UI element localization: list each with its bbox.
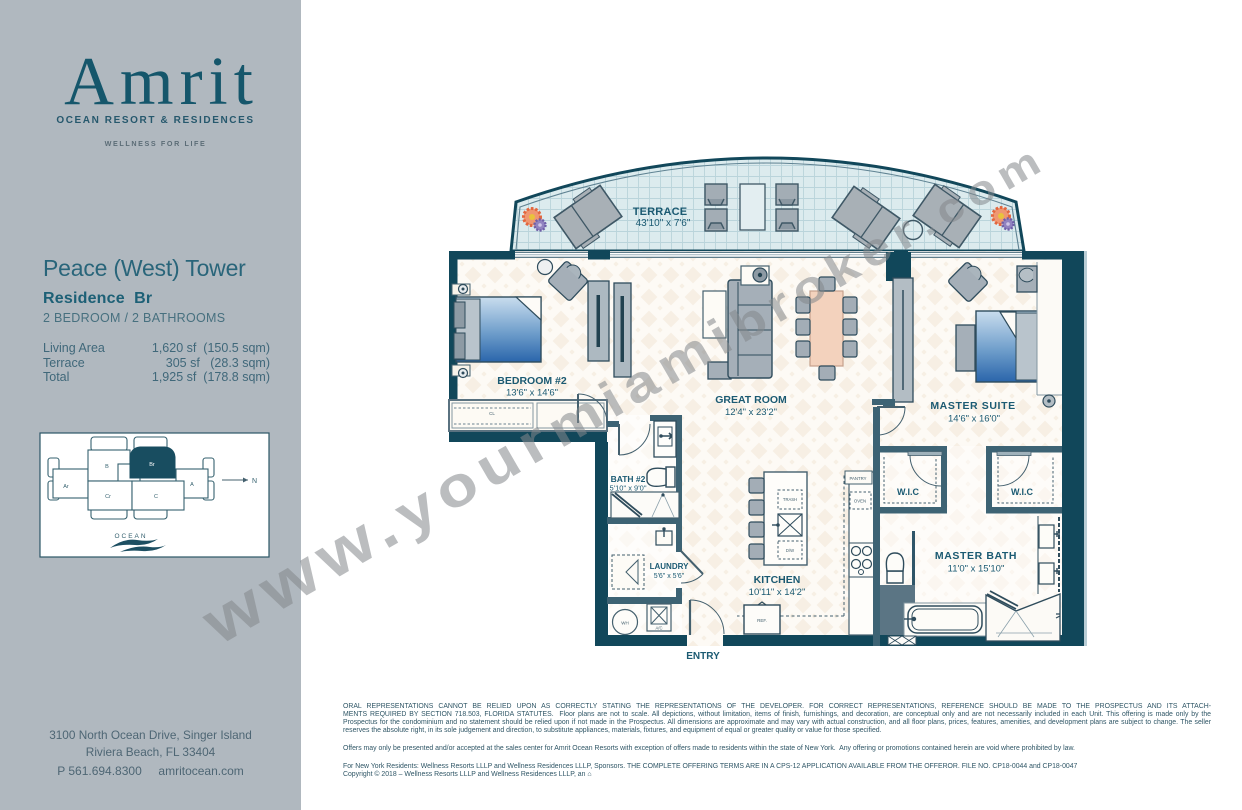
svg-text:A/C: A/C <box>656 626 663 631</box>
svg-text:C: C <box>154 494 158 500</box>
svg-text:TERRACE: TERRACE <box>633 206 688 218</box>
svg-text:12'4" x 23'2": 12'4" x 23'2" <box>725 407 777 418</box>
svg-text:Cr: Cr <box>105 494 111 500</box>
svg-text:WH: WH <box>621 621 629 626</box>
svg-text:ENTRY: ENTRY <box>686 651 720 662</box>
svg-text:11'0" x 15'10": 11'0" x 15'10" <box>948 564 1005 575</box>
svg-text:LAUNDRY: LAUNDRY <box>650 562 689 571</box>
svg-text:W.I.C: W.I.C <box>1011 487 1033 497</box>
svg-text:OVEN: OVEN <box>854 499 866 504</box>
svg-text:MASTER SUITE: MASTER SUITE <box>930 400 1015 412</box>
svg-text:5'10" x 9'0": 5'10" x 9'0" <box>610 484 647 493</box>
svg-text:10'11" x 14'2": 10'11" x 14'2" <box>749 587 806 598</box>
svg-text:PANTRY: PANTRY <box>849 476 866 481</box>
svg-text:BEDROOM #2: BEDROOM #2 <box>497 375 567 387</box>
svg-text:A: A <box>190 482 194 488</box>
svg-text:CL: CL <box>489 411 495 416</box>
svg-text:Ar: Ar <box>63 484 69 490</box>
svg-text:Br: Br <box>149 462 155 468</box>
svg-text:BATH #2: BATH #2 <box>611 474 646 484</box>
svg-text:5'6" x 5'6": 5'6" x 5'6" <box>654 573 685 580</box>
svg-text:43'10" x 7'6": 43'10" x 7'6" <box>636 218 691 229</box>
svg-text:REF.: REF. <box>757 618 767 623</box>
svg-text:MASTER BATH: MASTER BATH <box>935 550 1017 562</box>
svg-text:B: B <box>105 464 109 470</box>
svg-text:TRASH: TRASH <box>783 497 797 502</box>
svg-text:N: N <box>252 478 257 485</box>
svg-text:GREAT ROOM: GREAT ROOM <box>715 394 787 406</box>
svg-text:13'6" x 14'6": 13'6" x 14'6" <box>506 388 558 399</box>
svg-text:D/W: D/W <box>786 548 794 553</box>
svg-text:14'6" x 16'0": 14'6" x 16'0" <box>948 414 1000 425</box>
svg-text:OCEAN: OCEAN <box>114 533 147 540</box>
svg-text:KITCHEN: KITCHEN <box>754 574 801 586</box>
svg-text:W.I.C: W.I.C <box>897 487 919 497</box>
